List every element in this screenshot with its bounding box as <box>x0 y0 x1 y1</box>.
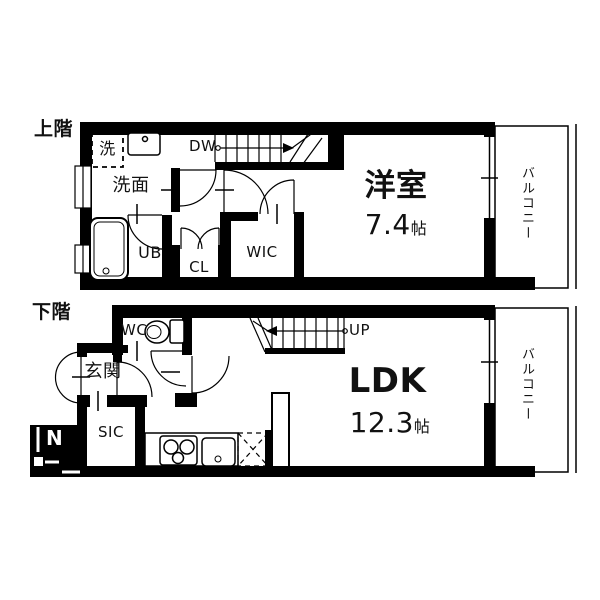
door-arc <box>198 228 219 249</box>
door-arc <box>180 170 216 206</box>
room-size-value: 7.4 <box>365 208 411 241</box>
wall <box>171 245 180 280</box>
western-room-size: 7.4帖 <box>344 211 448 239</box>
wc-label: WC <box>121 323 153 338</box>
wall <box>80 277 535 290</box>
door-arc <box>151 351 186 386</box>
sic-label: SIC <box>91 425 131 440</box>
ldk-label: LDK <box>340 364 435 398</box>
floor-plan: 上階 洗 洗面 UB CL WIC DW 洋室 7.4帖 バルコニー 下階 WC… <box>0 0 600 600</box>
wall <box>175 393 197 407</box>
wall <box>294 212 304 280</box>
room-size-value: 12.3 <box>350 406 414 439</box>
washbasin <box>128 133 160 155</box>
wall <box>484 403 495 466</box>
washer-label: 洗 <box>92 141 123 157</box>
door-arc <box>224 170 268 214</box>
wall <box>220 212 258 221</box>
washroom-label: 洗面 <box>104 177 158 195</box>
ldk-size: 12.3帖 <box>336 409 444 437</box>
upper-floor-title: 上階 <box>34 120 80 139</box>
wall <box>328 122 344 170</box>
wall <box>484 218 495 290</box>
north-label: N <box>46 428 66 448</box>
wall <box>77 343 87 357</box>
kitchen-sink <box>202 438 235 466</box>
lower-floor-title: 下階 <box>32 303 78 322</box>
wic-label: WIC <box>238 245 286 260</box>
wall <box>113 345 122 362</box>
stairs-down-label: DW <box>189 139 217 154</box>
bath-label: UB <box>132 245 168 261</box>
wall <box>74 466 535 477</box>
wall <box>220 212 231 280</box>
wall <box>135 395 145 467</box>
door-arc <box>192 356 229 393</box>
stairs-landing-wall <box>215 162 328 170</box>
closet-label: CL <box>180 260 218 275</box>
wall <box>77 395 90 407</box>
stairs-up-label: UP <box>349 323 377 338</box>
stairs-up <box>250 318 347 354</box>
balcony-lower-label: バルコニー <box>520 347 533 433</box>
refrigerator-space <box>238 433 268 466</box>
room-size-unit: 帖 <box>414 417 431 436</box>
kitchen-partition <box>272 393 289 467</box>
room-size-unit: 帖 <box>411 219 428 238</box>
door-arc <box>181 228 202 249</box>
stove <box>160 436 197 465</box>
bathtub <box>90 218 128 280</box>
entrance-label: 玄関 <box>83 363 123 381</box>
wall <box>112 305 495 318</box>
balcony-upper-label: バルコニー <box>520 166 533 252</box>
wall <box>484 305 495 320</box>
floor-plan-drawing <box>0 0 600 600</box>
balcony-upper <box>495 124 576 289</box>
wall <box>484 122 495 137</box>
balcony-lower <box>495 306 576 473</box>
western-room-label: 洋室 <box>344 171 448 202</box>
